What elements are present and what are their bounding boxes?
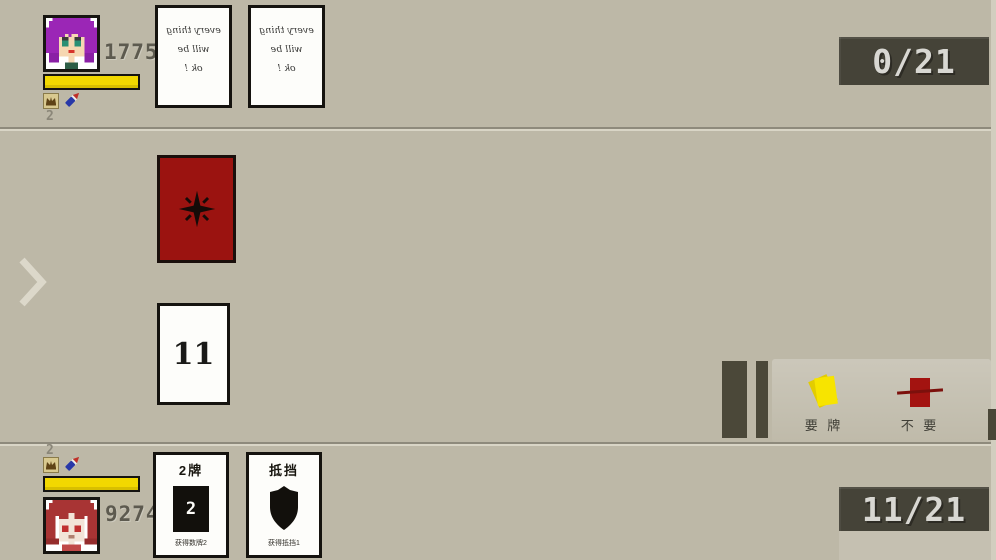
opponent-score-value: 0/21	[872, 42, 955, 81]
player-pen-icon	[62, 454, 82, 474]
opponent-score-badge: 0/21	[839, 37, 989, 85]
badge-underlight	[839, 531, 991, 560]
player-hp-value: 9274	[105, 502, 160, 526]
player-hp-bar	[43, 476, 140, 492]
player-avatar-pixel-art	[46, 500, 97, 551]
drawn-card-value: 11	[173, 337, 215, 372]
hand-card-title: 抵挡	[269, 460, 299, 479]
drawn-number-card[interactable]: 11	[157, 303, 230, 405]
game-screen: 17759 2 every thing will be ok ! every t…	[0, 0, 996, 560]
player-token-icon	[43, 457, 59, 473]
opponent-card-2[interactable]: every thing will be ok !	[248, 5, 325, 108]
stand-button-label: 不 要	[888, 415, 952, 434]
card-text-line: ok !	[184, 59, 202, 78]
red-card-crossed-icon	[897, 374, 943, 410]
number-card-value: 2	[186, 499, 196, 519]
advance-arrow-button[interactable]	[12, 252, 52, 312]
player-score-value: 11/21	[862, 490, 966, 529]
hand-card-title: 2牌	[179, 460, 203, 479]
deck-card[interactable]	[157, 155, 236, 263]
opponent-avatar-pixel-art	[46, 18, 97, 69]
hit-button[interactable]: 要 牌	[792, 372, 856, 434]
opponent-pen-icon	[62, 90, 82, 110]
crown-token-icon	[43, 93, 59, 109]
opponent-token-count: 2	[46, 109, 54, 124]
crown-token-icon	[43, 457, 59, 473]
card-text-line: every thing	[259, 21, 314, 40]
chevron-right-icon	[12, 252, 52, 312]
hand-card-caption: 获得数牌2	[175, 538, 207, 548]
player-avatar	[43, 497, 100, 554]
card-text-line: will be	[271, 40, 303, 59]
card-text-line: ok !	[277, 59, 295, 78]
shield-icon	[264, 484, 304, 532]
stand-button[interactable]: 不 要	[888, 372, 952, 434]
player-token-count: 2	[46, 443, 54, 458]
hand-card-caption: 获得抵挡1	[268, 538, 300, 548]
top-zone-divider	[0, 127, 996, 131]
opponent-card-2-text: every thing will be ok !	[251, 8, 322, 105]
hit-button-label: 要 牌	[792, 415, 856, 434]
card-text-line: will be	[178, 40, 210, 59]
opponent-avatar	[43, 15, 100, 72]
hand-card-block[interactable]: 抵挡 获得抵挡1	[246, 452, 322, 558]
number-card-box: 2	[173, 486, 209, 532]
bottom-zone-divider	[0, 442, 996, 446]
hand-card-number2[interactable]: 2牌 2 获得数牌2	[153, 452, 229, 558]
right-edge-tab	[988, 409, 996, 440]
opponent-hp-bar	[43, 74, 140, 90]
yellow-cards-icon	[806, 374, 842, 410]
card-text-line: every thing	[166, 21, 221, 40]
pause-bar-right	[756, 361, 768, 438]
opponent-token-icon	[43, 93, 59, 109]
pen-icon	[62, 90, 82, 110]
player-score-badge: 11/21	[839, 487, 989, 531]
opponent-card-1[interactable]: every thing will be ok !	[155, 5, 232, 108]
pause-bar-left	[722, 361, 747, 438]
star-burst-icon	[173, 185, 221, 233]
opponent-card-1-text: every thing will be ok !	[158, 8, 229, 105]
pen-icon	[62, 454, 82, 474]
right-edge-strip	[991, 0, 996, 560]
